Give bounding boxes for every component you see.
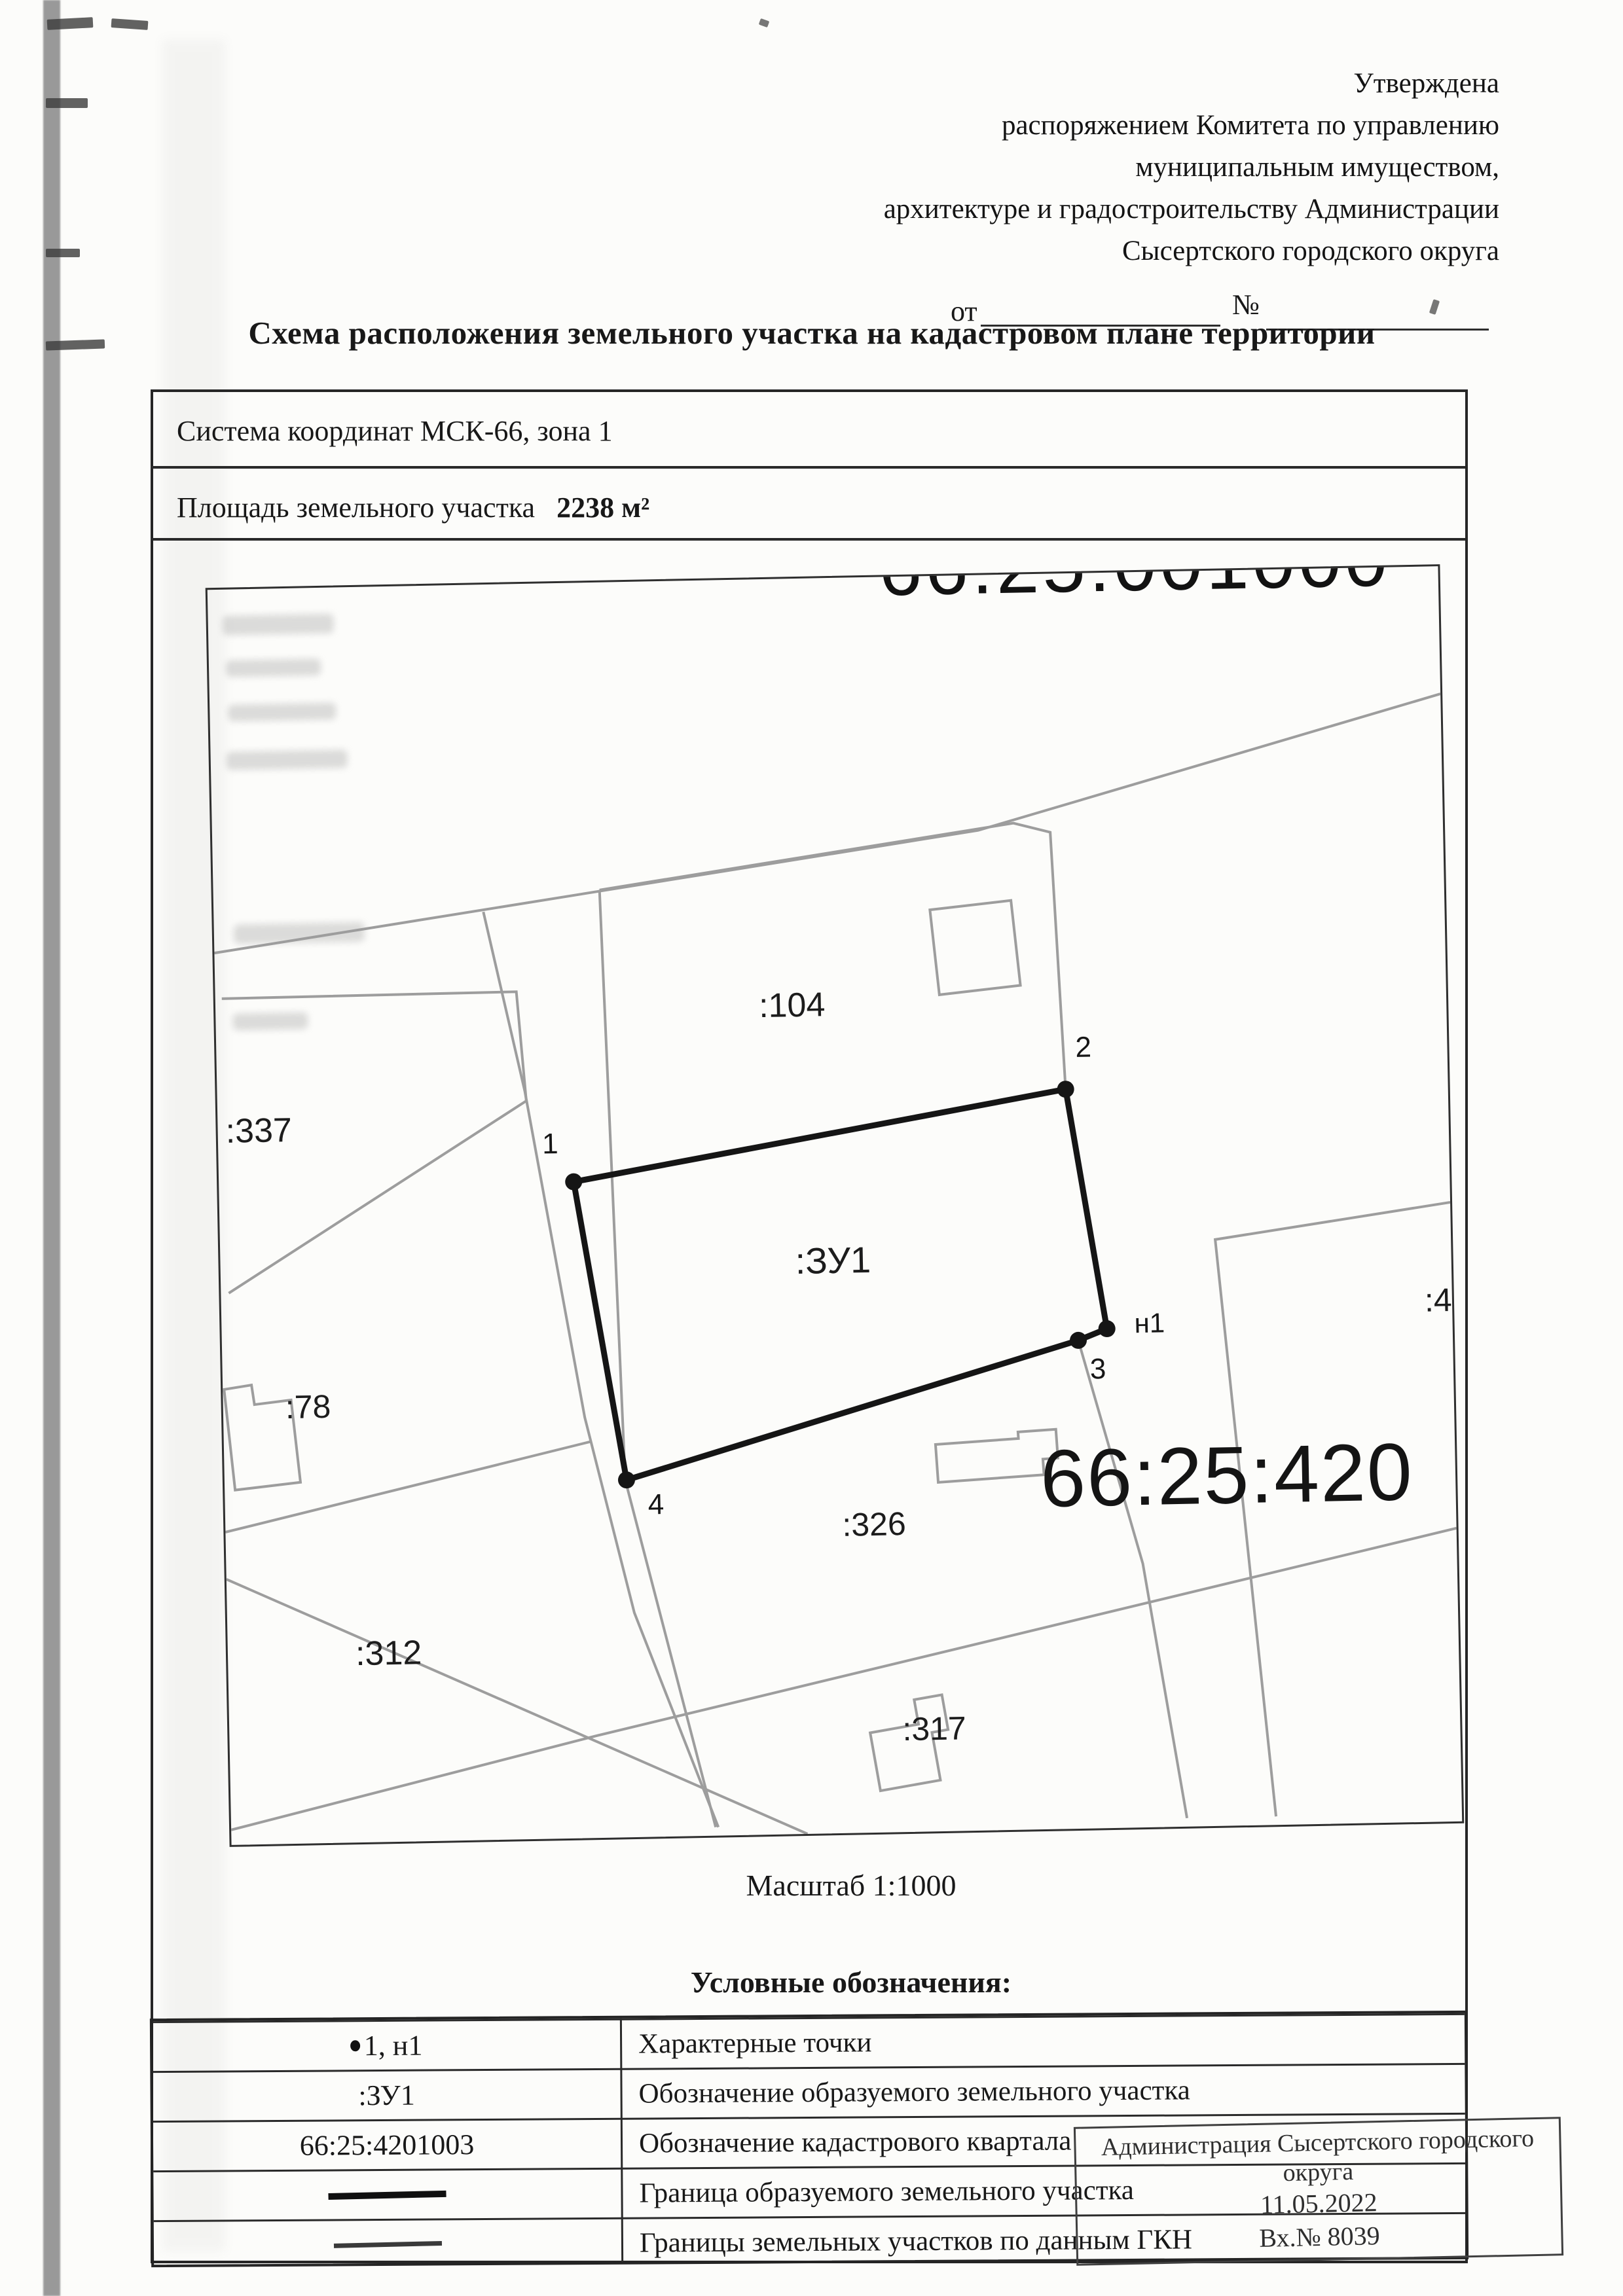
legend-symbol-thick-line [153, 2170, 621, 2220]
thick-line-icon [328, 2190, 446, 2199]
scale-caption: Масштаб 1:1000 [196, 1868, 1506, 1903]
row-area: Площадь земельного участка 2238 м² [151, 469, 1465, 541]
scan-dash [46, 249, 80, 257]
parcel-label-78: :78 [285, 1388, 331, 1426]
legend-description: Обозначение образуемого земельного участ… [638, 2065, 1459, 2118]
boundary-road-diagonal [210, 694, 1446, 953]
parcel-label-326: :326 [842, 1505, 906, 1544]
boundary-parcel-78-south [224, 1441, 593, 1532]
legend-symbol-text: 66:25:4201003 [153, 2120, 621, 2170]
point-3 [1070, 1332, 1087, 1349]
approval-line: муниципальным имуществом, [714, 147, 1499, 188]
thin-line-icon [333, 2241, 441, 2248]
point-n1 [1098, 1320, 1115, 1337]
point-2 [1057, 1081, 1074, 1098]
scan-dash [111, 18, 149, 30]
subject-parcel-label: :ЗУ1 [795, 1238, 871, 1282]
point-4 [618, 1471, 635, 1488]
scan-dash [47, 17, 94, 30]
boundary-lane-west [483, 908, 718, 1831]
characteristic-points [564, 1080, 1119, 1490]
coordinate-system-text: Система координат МСК-66, зона 1 [177, 414, 613, 448]
legend-symbol-text: :ЗУ1 [153, 2070, 620, 2121]
point-label-n1: н1 [1134, 1307, 1165, 1339]
legend-description: Характерные точки [638, 2015, 1459, 2068]
legend-symbol-thin-line [154, 2219, 621, 2270]
point-label-3: 3 [1089, 1353, 1106, 1386]
scan-speck [759, 18, 770, 27]
scanned-document-page: Утверждена распоряжением Комитета по упр… [0, 0, 1623, 2296]
incoming-stamp: Администрация Сысертского городского окр… [1074, 2117, 1563, 2266]
boundary-lane-east [600, 888, 716, 1829]
scan-dash [46, 98, 88, 108]
legend-heading: Условные обозначения: [196, 1965, 1506, 2000]
formed-parcel-border [572, 1088, 1110, 1480]
approval-line: архитектуре и градостроительству Админис… [714, 188, 1499, 230]
approval-line: распоряжением Комитета по управлению [714, 105, 1499, 147]
legend-symbol-point: 1, н1 [153, 2020, 620, 2071]
point-1 [565, 1173, 582, 1190]
boundary-below-point3 [1078, 1338, 1187, 1820]
parcel-label-337: :337 [225, 1111, 292, 1151]
approval-line: Утверждена [714, 63, 1499, 105]
legend-symbol-text: 1, н1 [364, 2029, 423, 2063]
point-icon [350, 2040, 360, 2051]
approval-block: Утверждена распоряжением Комитета по упр… [714, 63, 1499, 272]
boundary-parcel-317-north [226, 1528, 1462, 1830]
legend-row: 1, н1 Характерные точки [153, 2013, 1465, 2071]
point-label-1: 1 [542, 1128, 558, 1160]
cadastral-map: 66:25:001000 [206, 564, 1465, 1847]
parcel-label-317: :317 [902, 1709, 966, 1748]
point-label-4: 4 [647, 1488, 664, 1521]
area-label: Площадь земельного участка [177, 492, 535, 524]
parcel-label-312: :312 [355, 1633, 422, 1674]
parcel-label-104: :104 [759, 985, 826, 1026]
page-title: Схема расположения земельного участка на… [157, 314, 1467, 351]
building-parcel-104 [930, 901, 1021, 996]
quarter-number-label: 66:25:420 [1040, 1426, 1414, 1526]
area-value: 2238 м² [556, 492, 649, 524]
area-text: Площадь земельного участка 2238 м² [177, 491, 649, 524]
legend-row: :ЗУ1 Обозначение образуемого земельного … [153, 2063, 1465, 2121]
point-label-2: 2 [1075, 1031, 1091, 1064]
row-coordinate-system: Система координат МСК-66, зона 1 [151, 392, 1465, 469]
approval-line: Сысертского городского округа [714, 230, 1499, 272]
boundary-parcel-104 [598, 822, 1066, 1098]
